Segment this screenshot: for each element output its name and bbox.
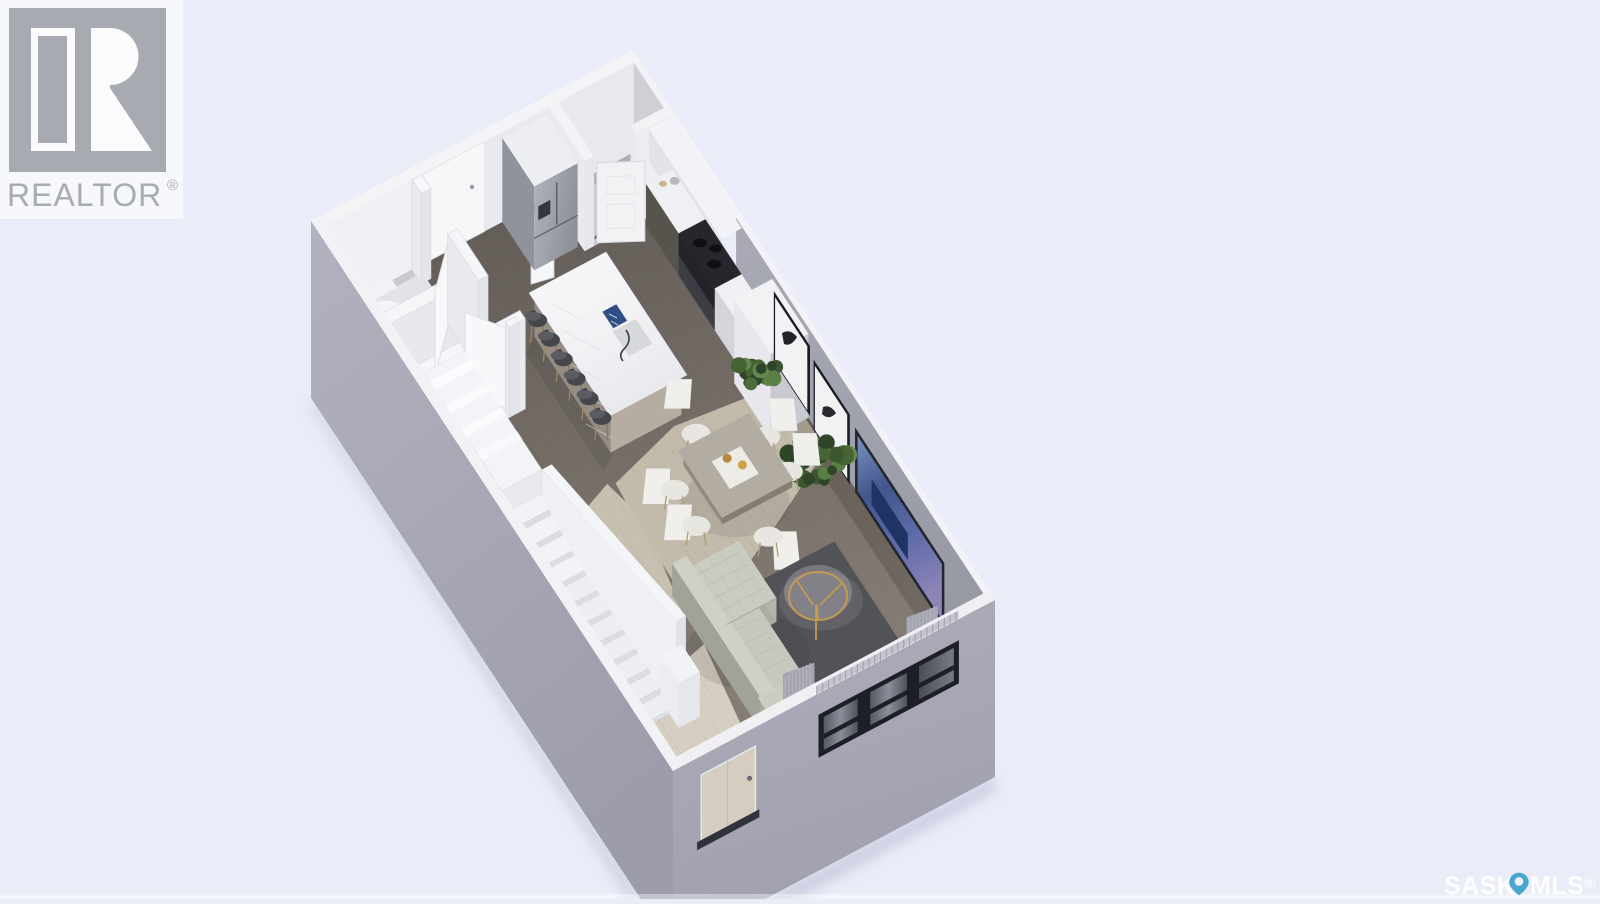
svg-text:REALTOR: REALTOR — [7, 177, 162, 213]
svg-text:®: ® — [167, 177, 178, 194]
